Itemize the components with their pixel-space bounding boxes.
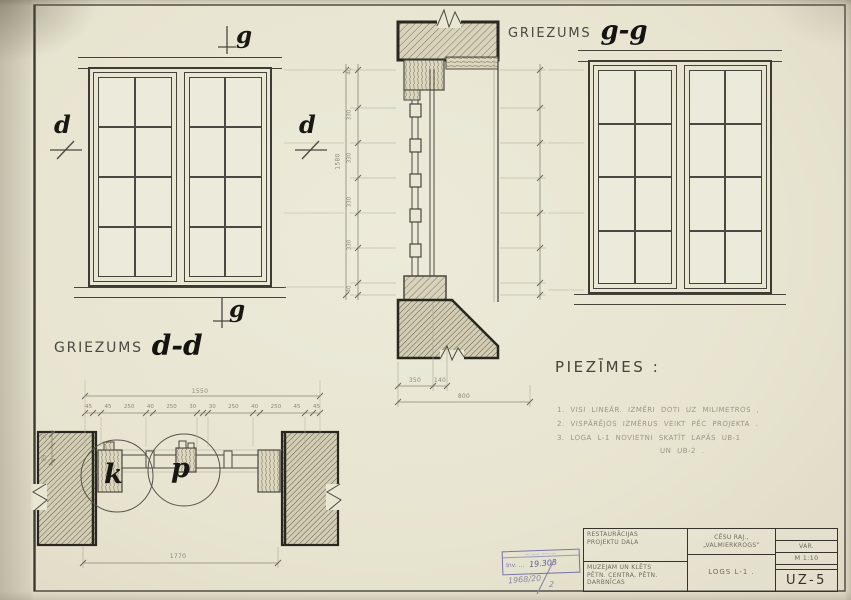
dim-value: 250 bbox=[271, 404, 282, 410]
dim-gg-left-segments: 4033033033033040 bbox=[345, 68, 354, 292]
dim-value: 40 bbox=[347, 68, 353, 75]
note-line-continued: UN UB-2 . bbox=[660, 444, 705, 458]
mark-g-top-label: g bbox=[236, 22, 252, 49]
organization-line2: PROJEKTU DAĻA bbox=[587, 539, 684, 547]
dim-value: 45 bbox=[85, 404, 92, 410]
dim-dd-segments: 4545250402503030250402504545 bbox=[85, 404, 320, 410]
mark-d-left-label: d bbox=[54, 110, 71, 139]
location-line2: „VALMIERKROGS” bbox=[703, 542, 760, 550]
dim-value: 30 bbox=[42, 433, 48, 440]
section-gg-title-name: g-g bbox=[600, 18, 647, 44]
stamp-inv-prefix: Inv. ... bbox=[506, 562, 524, 570]
drawing-linework bbox=[0, 0, 851, 600]
dim-value: 85 bbox=[42, 455, 48, 462]
section-dd-title-prefix: GRIEZUMS bbox=[54, 340, 143, 356]
object-line3: DARBNĪCAS bbox=[587, 579, 684, 587]
dim-value: 250 bbox=[228, 404, 239, 410]
stamp-copy-number: 2 bbox=[549, 580, 554, 589]
empty-cell bbox=[776, 529, 837, 541]
mark-d-right-label: d bbox=[299, 110, 316, 139]
detail-k-label: k bbox=[104, 459, 123, 490]
dim-value: 40 bbox=[251, 404, 258, 410]
notes-heading: PIEZĪMES : bbox=[555, 358, 660, 376]
dim-value: 45 bbox=[104, 404, 111, 410]
location-cell: CĒSU RAJ., „VALMIERKROGS” bbox=[688, 529, 775, 555]
dim-dd-left-segments: 3085 bbox=[40, 433, 49, 461]
stage-cell: VAR. bbox=[776, 541, 837, 553]
mark-g-bottom-label: g bbox=[229, 296, 245, 323]
dim-value: 30 bbox=[189, 404, 196, 410]
dim-value: 330 bbox=[347, 197, 353, 208]
dim-value: 40 bbox=[347, 285, 353, 292]
notes-list: 1. VISI LINEĀR. IZMĒRI DOTI UZ MILIMETRO… bbox=[557, 403, 760, 445]
dim-value: 45 bbox=[294, 404, 301, 410]
section-gg-drawing bbox=[398, 10, 498, 363]
object-line1: MUZEJAM UN KLĒTS bbox=[587, 564, 684, 572]
detail-p-label: p bbox=[171, 453, 190, 484]
section-dd-drawing bbox=[31, 432, 342, 545]
note-line: 1. VISI LINEĀR. IZMĒRI DOTI UZ MILIMETRO… bbox=[557, 403, 760, 417]
sheet-number-cell: UZ-5 bbox=[776, 570, 837, 591]
section-mark-d-left bbox=[50, 141, 82, 159]
section-mark-d-right bbox=[295, 141, 327, 159]
title-block-right-column: VAR. M 1:10 UZ-5 bbox=[776, 529, 837, 591]
dim-value: 30 bbox=[209, 404, 216, 410]
note-line: 3. LOGA L-1 NOVIETNI SKATĪT LAPĀS UB-1 bbox=[557, 431, 760, 445]
section-dd-title: GRIEZUMS d-d bbox=[54, 336, 203, 360]
dim-value: 250 bbox=[124, 404, 135, 410]
note-line: 2. VISPĀRĒJOS IZMĒRUS VEIKT PĒC PROJEKTA… bbox=[557, 417, 760, 431]
drawing-sheet: g g d d k p GRIEZUMS g-g GRIEZUMS d-d PI… bbox=[0, 0, 851, 600]
organization-cell: RESTAURĀCIJAS PROJEKTU DAĻA bbox=[584, 529, 687, 562]
object-cell: MUZEJAM UN KLĒTS PĒTN. CENTRA, PĒTN. DAR… bbox=[584, 562, 687, 591]
dim-value: 45 bbox=[313, 404, 320, 410]
scale-cell: M 1:10 bbox=[776, 553, 837, 565]
dim-value: 330 bbox=[347, 153, 353, 164]
object-line2: PĒTN. CENTRA, PĒTN. bbox=[587, 572, 684, 580]
section-dd-title-name: d-d bbox=[152, 332, 203, 360]
dim-value: 40 bbox=[147, 404, 154, 410]
section-gg-title: GRIEZUMS g-g bbox=[508, 22, 648, 44]
dim-value: 330 bbox=[347, 240, 353, 251]
archive-stamp: —··—— ——··— Inv. ... 19.303 bbox=[502, 549, 581, 576]
section-mark-g-top bbox=[218, 26, 236, 54]
location-line1: CĒSU RAJ., bbox=[714, 534, 749, 542]
section-gg-title-prefix: GRIEZUMS bbox=[508, 26, 591, 41]
dim-value: 250 bbox=[166, 404, 177, 410]
stamp-inv-number: 19.303 bbox=[529, 558, 558, 569]
title-block-middle-column: CĒSU RAJ., „VALMIERKROGS” LOGS L-1 . bbox=[688, 529, 776, 591]
dim-value: 330 bbox=[347, 109, 353, 120]
drawing-title-cell: LOGS L-1 . bbox=[688, 555, 775, 591]
title-block: RESTAURĀCIJAS PROJEKTU DAĻA MUZEJAM UN K… bbox=[583, 528, 838, 592]
organization-line1: RESTAURĀCIJAS bbox=[587, 531, 684, 539]
title-block-left-column: RESTAURĀCIJAS PROJEKTU DAĻA MUZEJAM UN K… bbox=[584, 529, 688, 591]
